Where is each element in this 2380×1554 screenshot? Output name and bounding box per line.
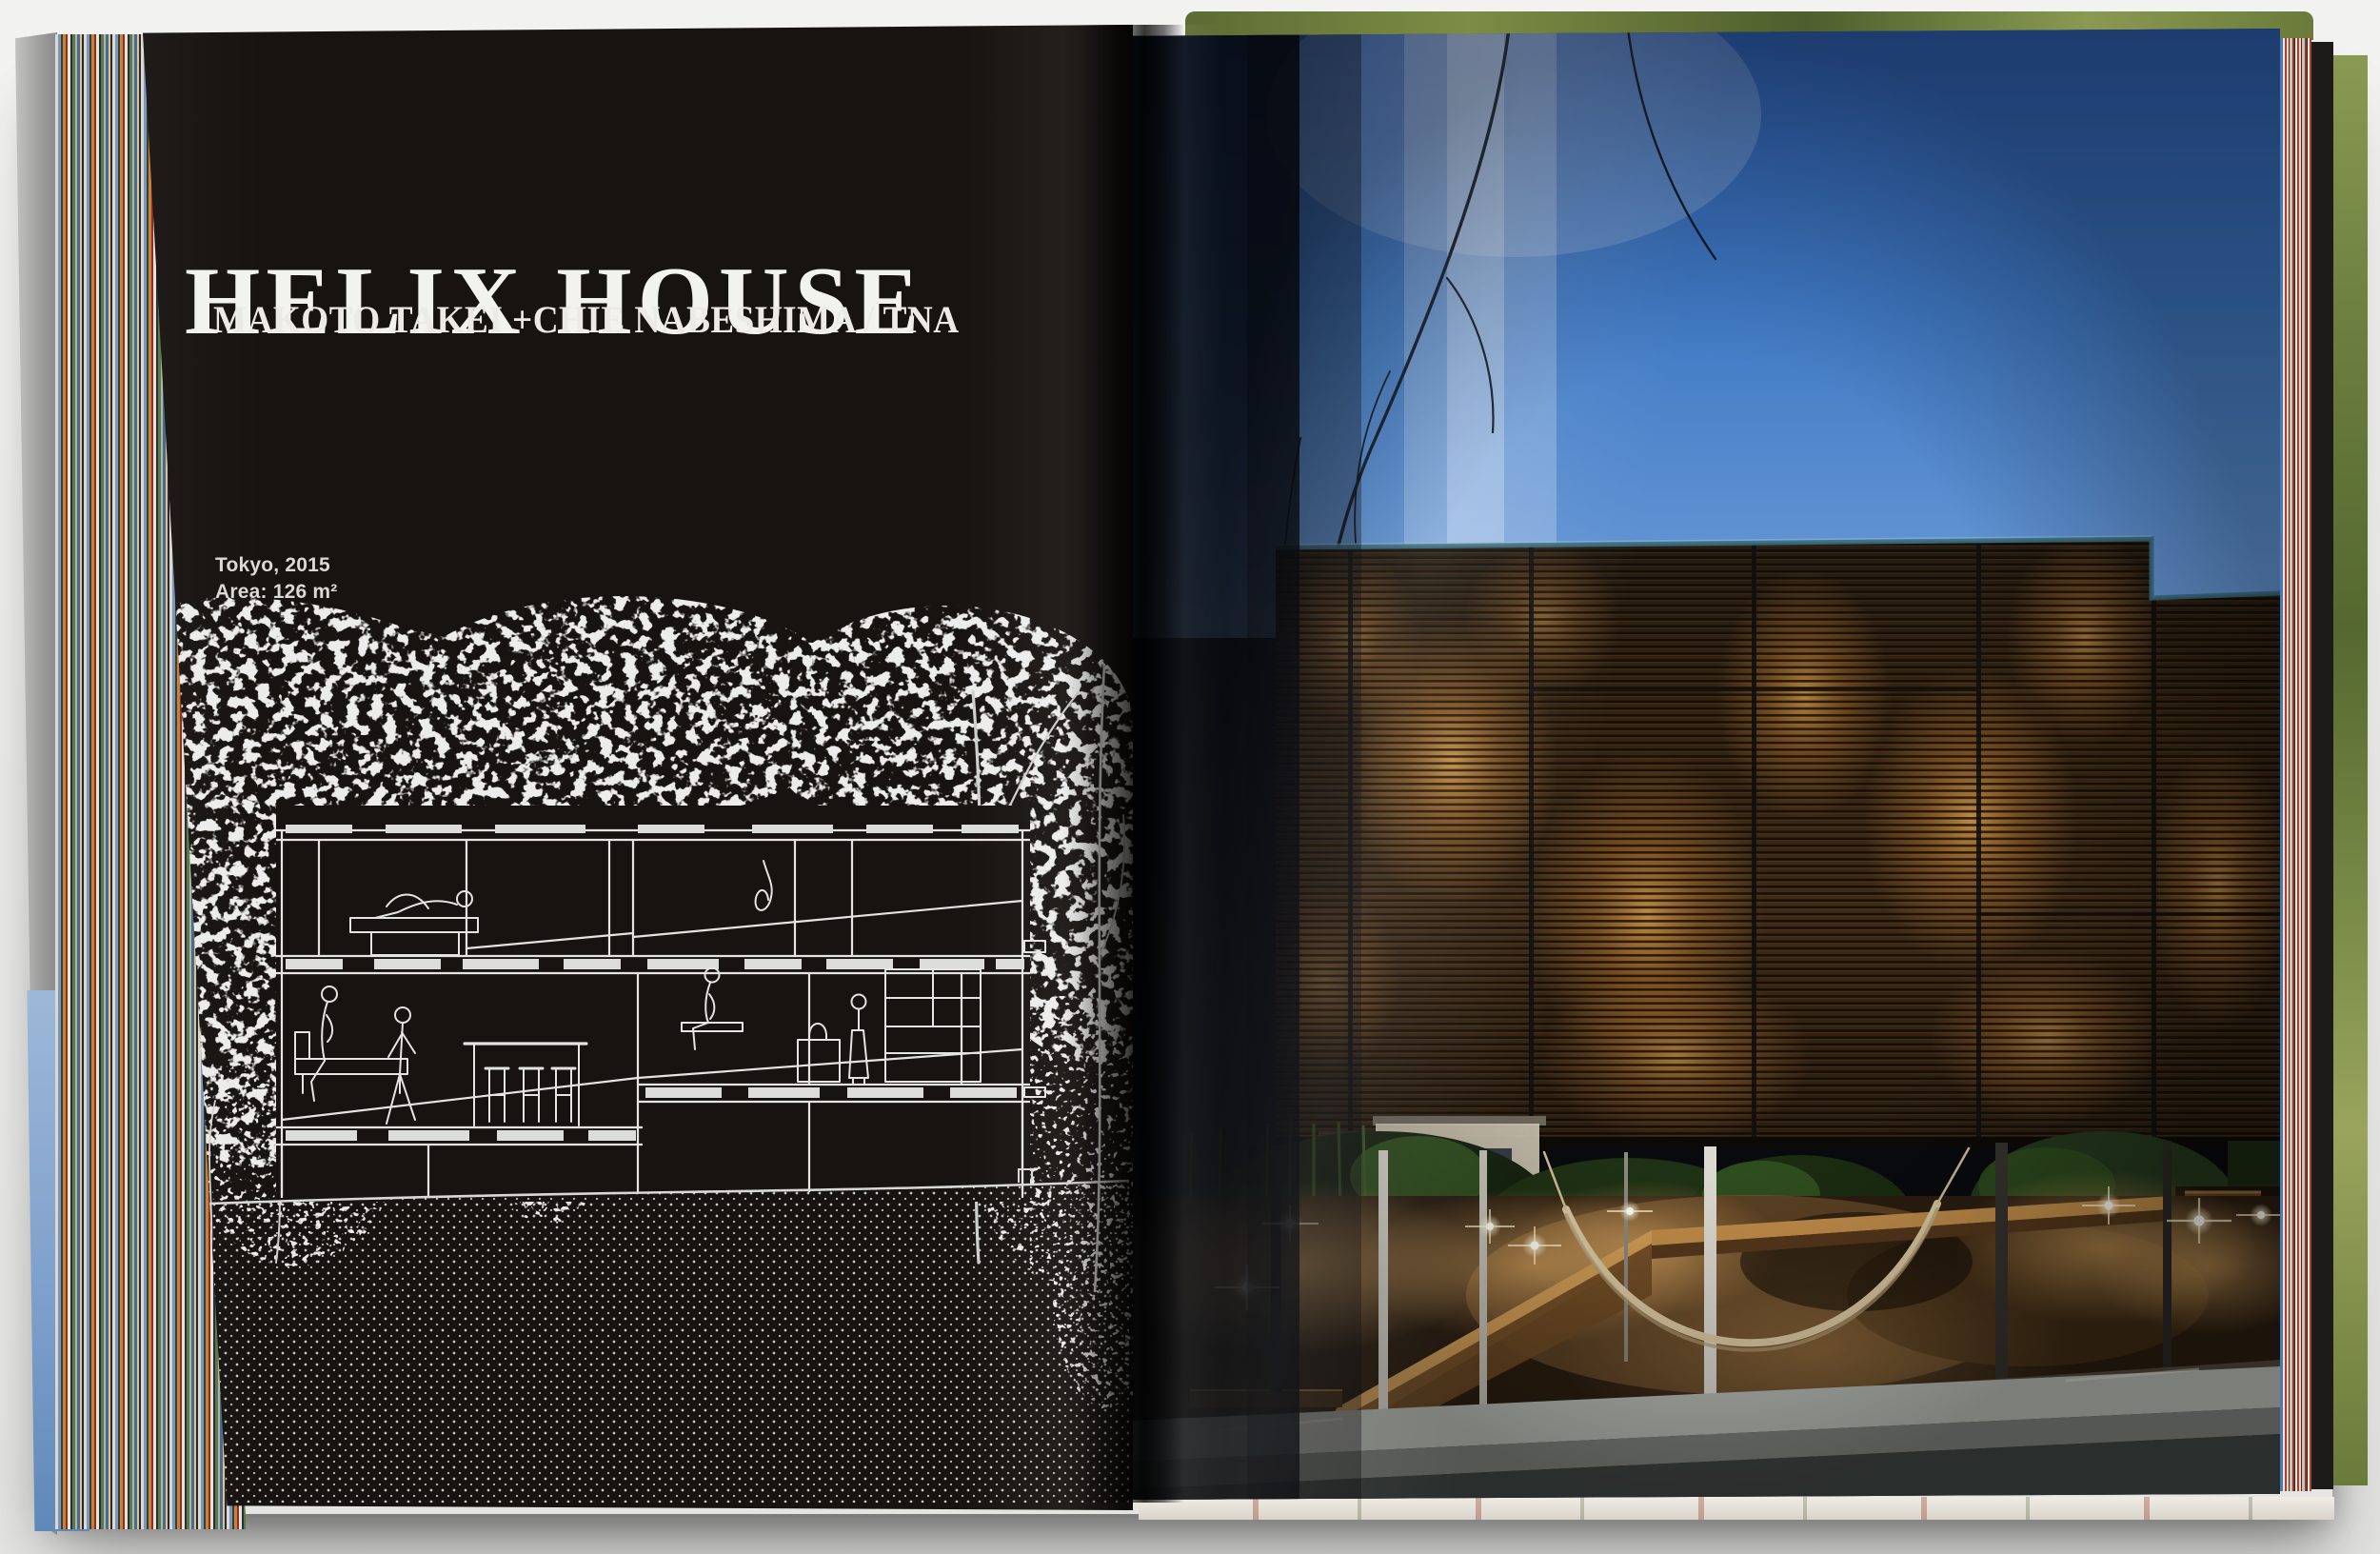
ground-hatch xyxy=(143,1169,1129,1503)
architects-line: MAKOTO TAKEI +CHIE NABESHIMA / TNA xyxy=(213,297,960,342)
page-gloss xyxy=(1133,29,2280,1500)
right-edge-gap-shadow xyxy=(2309,42,2333,1489)
meta-location: Tokyo, 2015 xyxy=(215,552,337,579)
underlying-page-bottom-edge xyxy=(1139,1497,2334,1520)
right-page xyxy=(1133,29,2280,1500)
project-meta: Tokyo, 2015 Area: 126 m² xyxy=(215,552,337,607)
book-photo-stage: HELIX HOUSE MAKOTO TAKEI +CHIE NABESHIMA… xyxy=(0,0,2380,1554)
building-section xyxy=(276,806,1045,1202)
right-underlying-page-edge xyxy=(2333,55,2368,1485)
right-fore-edge-pages xyxy=(2280,38,2311,1491)
left-page: HELIX HOUSE MAKOTO TAKEI +CHIE NABESHIMA… xyxy=(143,25,1133,1510)
house-photo xyxy=(1133,29,2280,1500)
meta-area: Area: 126 m² xyxy=(215,579,337,606)
